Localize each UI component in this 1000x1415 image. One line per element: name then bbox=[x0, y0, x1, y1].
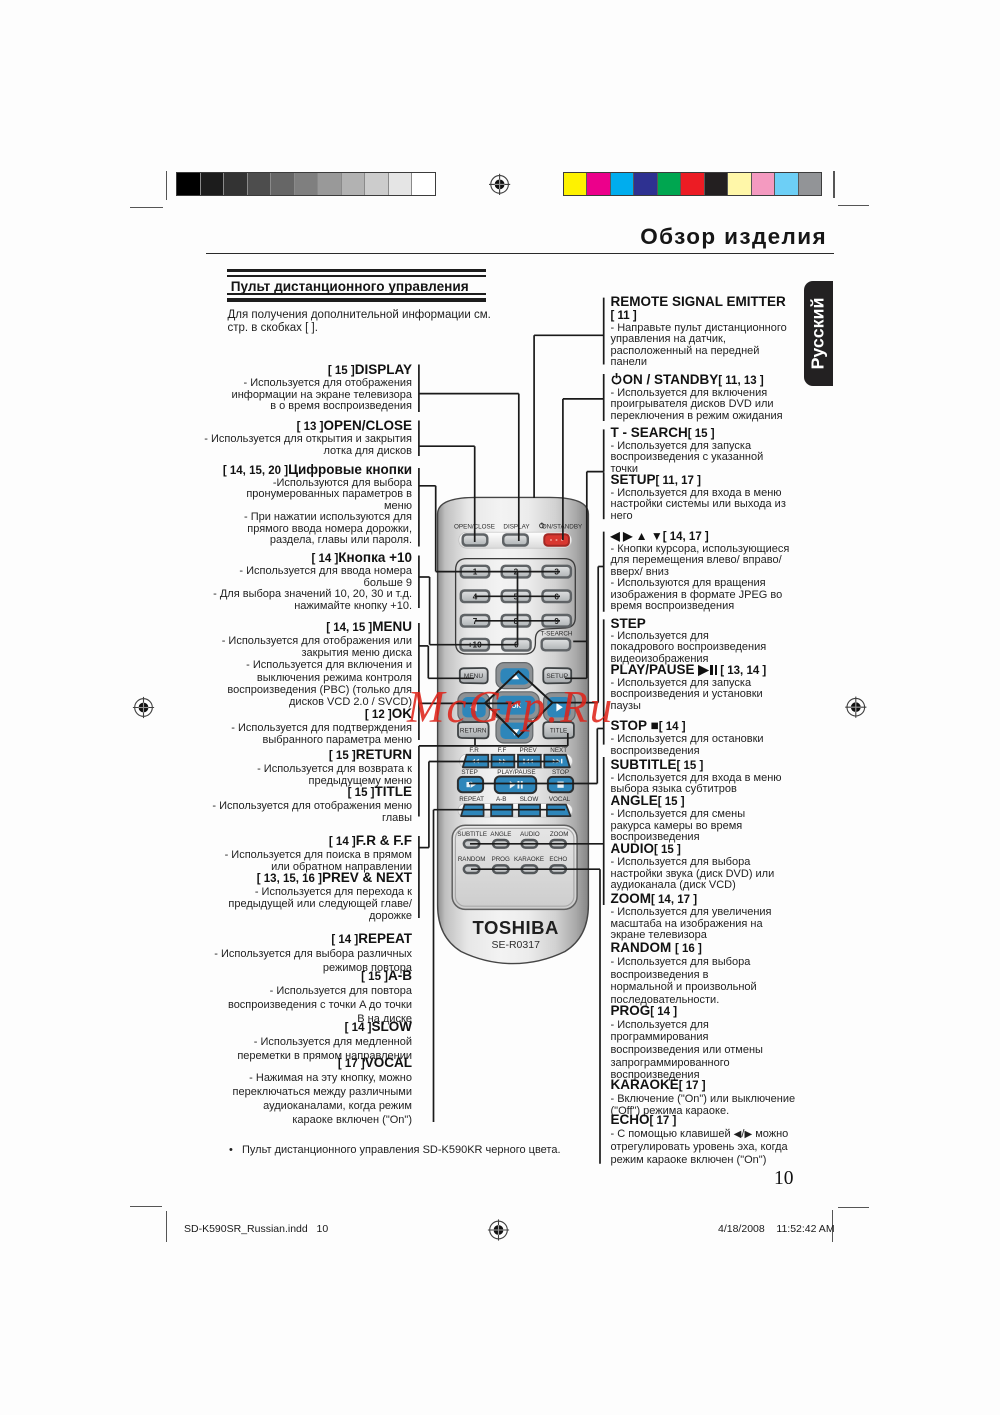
svg-text:SE-R0317: SE-R0317 bbox=[491, 939, 540, 951]
svg-text:VOCAL: VOCAL bbox=[549, 796, 571, 803]
svg-text:PLAY/PAUSE: PLAY/PAUSE bbox=[497, 769, 535, 776]
svg-text:STOP: STOP bbox=[552, 769, 569, 776]
svg-text:SETUP: SETUP bbox=[546, 673, 568, 680]
svg-text:RANDOM: RANDOM bbox=[458, 856, 486, 863]
svg-text:SUBTITLE: SUBTITLE bbox=[457, 831, 487, 838]
svg-text:AUDIO: AUDIO bbox=[520, 831, 540, 838]
svg-text:MENU: MENU bbox=[464, 673, 483, 680]
svg-text:REPEAT: REPEAT bbox=[459, 796, 484, 803]
svg-text:DISPLAY: DISPLAY bbox=[503, 524, 530, 531]
svg-text:ZOOM: ZOOM bbox=[550, 831, 569, 838]
svg-text:PROG: PROG bbox=[492, 856, 510, 863]
svg-text:KARAOKE: KARAOKE bbox=[514, 856, 544, 863]
svg-text:F.R: F.R bbox=[469, 747, 479, 754]
svg-text:ECHO: ECHO bbox=[549, 856, 567, 863]
svg-text:ANGLE: ANGLE bbox=[490, 831, 511, 838]
svg-text:F.F: F.F bbox=[498, 747, 507, 754]
svg-text:TOSHIBA: TOSHIBA bbox=[472, 917, 558, 938]
svg-text:PREV: PREV bbox=[520, 747, 538, 754]
svg-text:A-B: A-B bbox=[496, 796, 507, 803]
svg-text:STEP: STEP bbox=[461, 769, 477, 776]
svg-text:NEXT: NEXT bbox=[550, 747, 567, 754]
svg-text:SLOW: SLOW bbox=[520, 796, 539, 803]
svg-text:T-SEARCH: T-SEARCH bbox=[541, 630, 573, 637]
